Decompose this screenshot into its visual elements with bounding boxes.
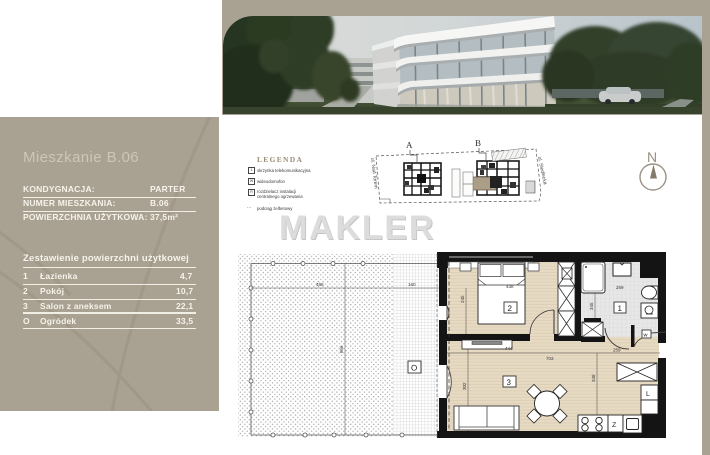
svg-text:703: 703 xyxy=(546,356,554,361)
svg-text:ul. Siedlecka: ul. Siedlecka xyxy=(536,156,548,185)
svg-text:B: B xyxy=(475,138,481,148)
svg-text:A: A xyxy=(406,140,413,150)
svg-text:259: 259 xyxy=(616,285,624,290)
svg-text:245: 245 xyxy=(460,295,465,303)
svg-text:L: L xyxy=(646,391,650,398)
svg-text:ul. Nad Torem: ul. Nad Torem xyxy=(369,158,379,190)
svg-text:160: 160 xyxy=(408,282,416,287)
svg-text:458: 458 xyxy=(316,282,324,287)
svg-text:O: O xyxy=(411,364,417,373)
svg-text:444: 444 xyxy=(505,346,513,351)
svg-text:856: 856 xyxy=(339,345,344,353)
svg-text:345: 345 xyxy=(589,302,594,310)
svg-text:3: 3 xyxy=(507,378,512,387)
svg-text:438: 438 xyxy=(506,284,514,289)
svg-text:Z: Z xyxy=(612,422,617,429)
svg-text:w: w xyxy=(643,333,648,339)
svg-text:259: 259 xyxy=(613,348,621,353)
svg-text:1: 1 xyxy=(618,304,623,313)
svg-text:348: 348 xyxy=(591,374,596,382)
svg-text:2: 2 xyxy=(508,304,513,313)
svg-text:N: N xyxy=(647,149,657,165)
svg-text:302: 302 xyxy=(462,382,467,390)
